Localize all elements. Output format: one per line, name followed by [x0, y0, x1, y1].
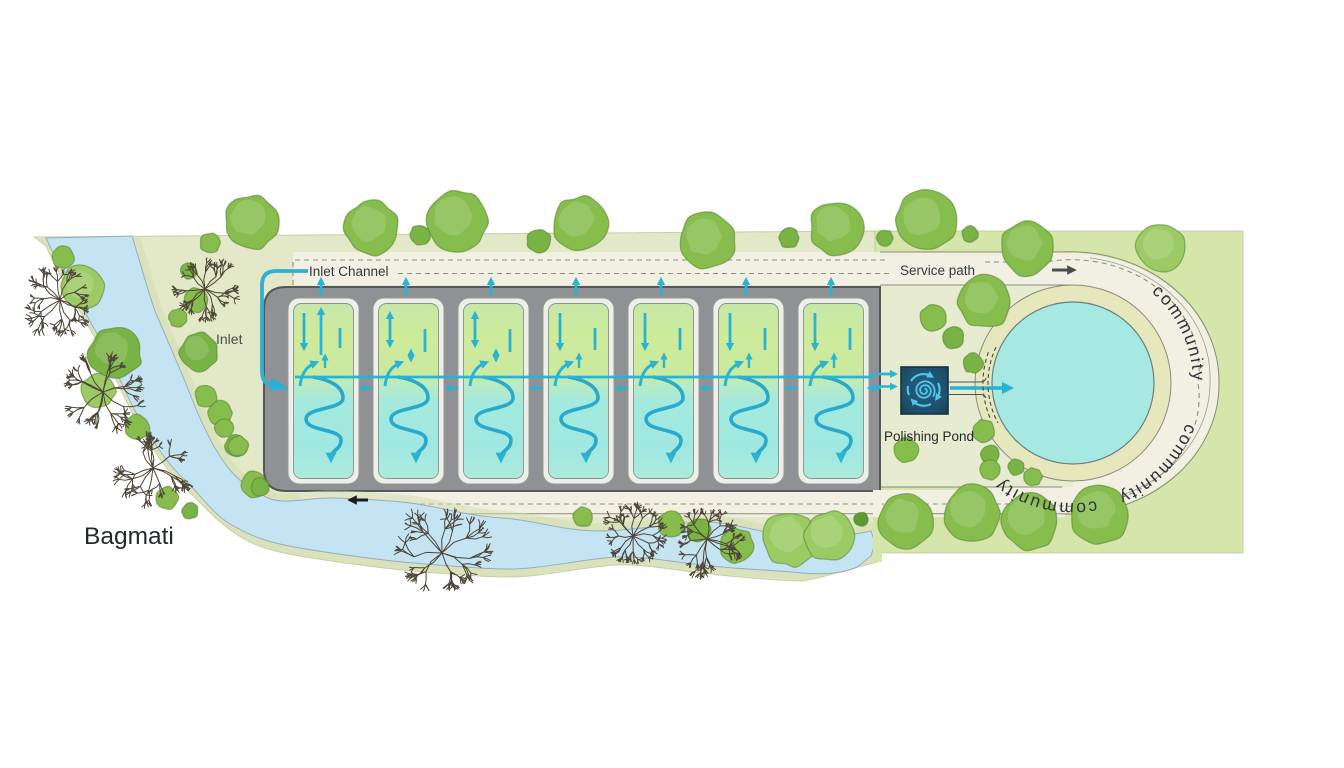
svg-text:Service path: Service path [900, 263, 975, 278]
svg-text:Bagmati: Bagmati [84, 523, 174, 550]
svg-text:Polishing Pond: Polishing Pond [884, 429, 974, 444]
svg-text:Inlet Channel: Inlet Channel [309, 264, 389, 279]
svg-text:Inlet: Inlet [216, 331, 243, 347]
